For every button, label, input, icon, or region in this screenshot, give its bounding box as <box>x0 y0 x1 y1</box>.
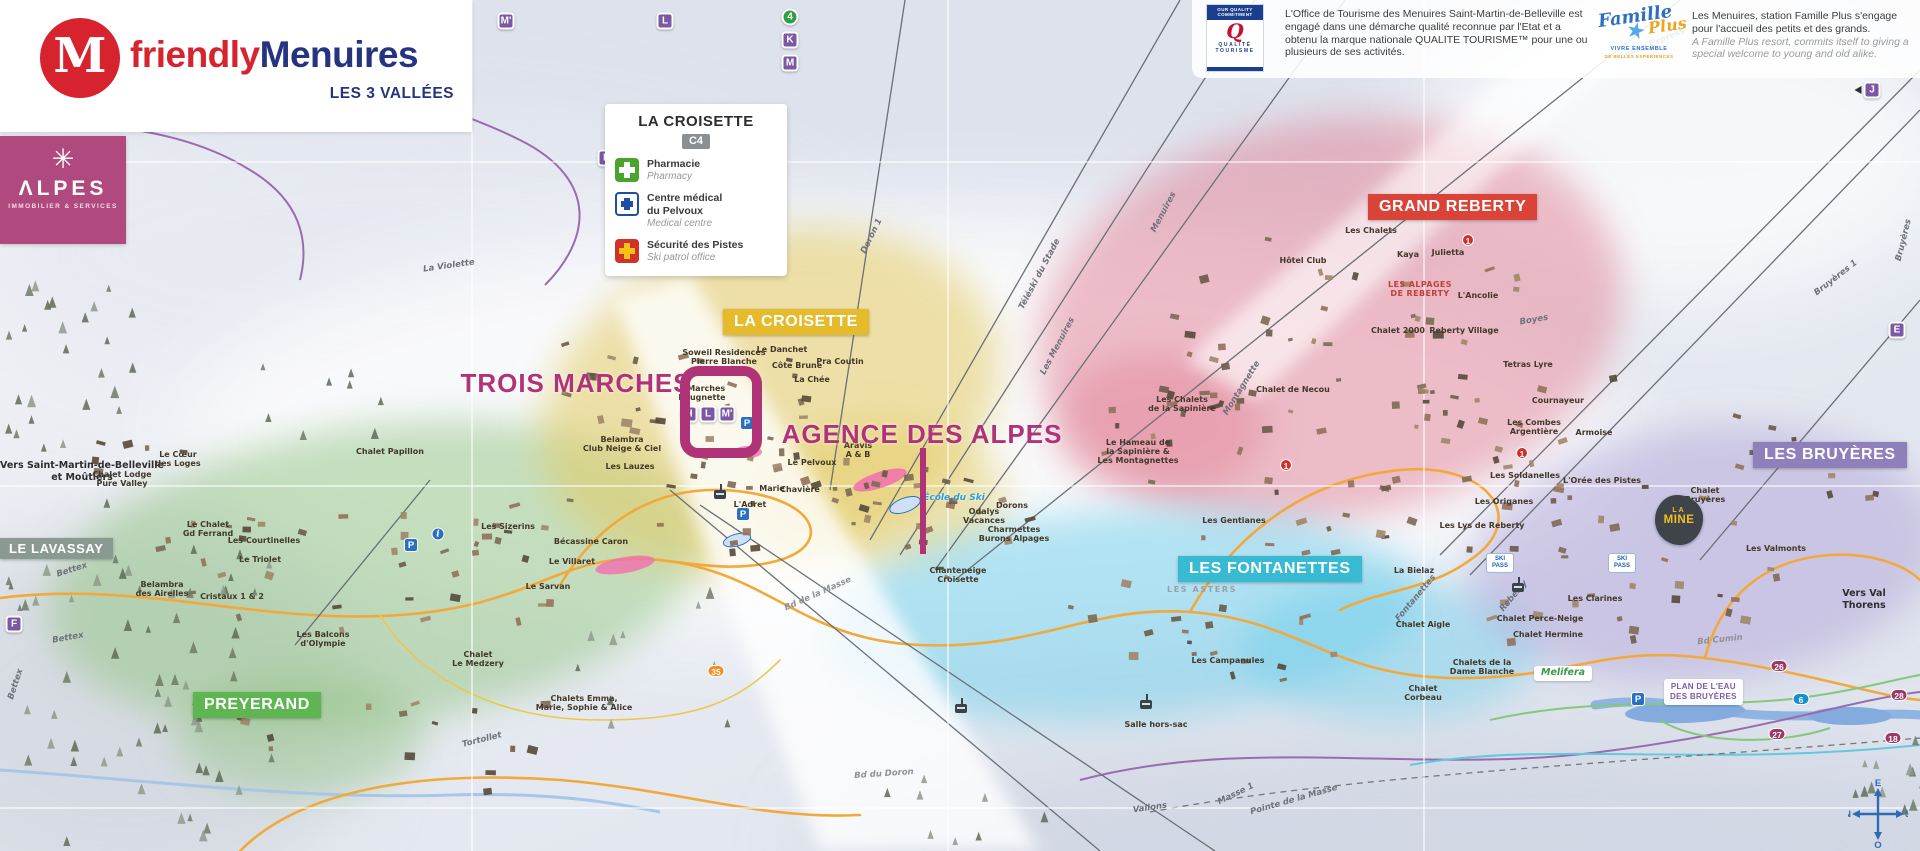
legend-item: Sécurité des PistesSki patrol office <box>615 239 777 264</box>
famille-plus-text: Les Menuires, station Famille Plus s'eng… <box>1692 10 1910 61</box>
qualite-tourisme-text: L'Office de Tourisme des Menuires Saint-… <box>1285 8 1593 59</box>
qualite-tourisme-logo: OUR QUALITY COMMITMENT Q QUALITÉ TOURISM… <box>1206 4 1264 72</box>
district-banner-les-fontanettes: LES FONTANETTES <box>1178 556 1362 582</box>
fp-text-fr: Les Menuires, station Famille Plus s'eng… <box>1692 10 1897 35</box>
parking-icon: P <box>736 507 750 521</box>
district-banner-la-croisette: LA CROISETTE <box>723 309 869 335</box>
parking-icon: P <box>404 538 418 552</box>
lift-station-badge: K <box>782 32 799 49</box>
gondola-icon <box>1140 700 1152 709</box>
brand-tagline: LES 3 VALLÉES <box>330 86 454 102</box>
route-number-badge: 18 <box>1885 732 1902 744</box>
lift-station-badge: L <box>657 13 674 30</box>
legend-title: LA CROISETTE <box>615 114 777 129</box>
brand-word-menuires: Menuires <box>260 34 418 75</box>
route-number-badge: 1 <box>1280 459 1292 471</box>
district-banner-preyerand: PREYERAND <box>193 692 321 718</box>
monogram-m: M <box>53 32 106 80</box>
plan-de-leau-label: PLAN DE L'EAU DES BRUYÈRES <box>1664 679 1743 705</box>
la-mine-logo: LA MINE <box>1655 495 1703 545</box>
agence-des-alpes-pointer-line <box>920 448 926 554</box>
ski-pass-office-badge: SKI PASS <box>1486 553 1514 573</box>
qt-banner: OUR QUALITY COMMITMENT <box>1207 5 1263 20</box>
famille-plus-logo: ★ Famille Plus VIVRE ENSEMBLE DE BELLES … <box>1596 2 1682 72</box>
legend-item: PharmaciePharmacy <box>615 158 777 183</box>
parking-icon: P <box>1631 692 1645 706</box>
fp-text-en: A Famille Plus resort, commits itself to… <box>1692 36 1909 61</box>
tourism-info-strip: OUR QUALITY COMMITMENT Q QUALITÉ TOURISM… <box>1192 0 1920 78</box>
lift-station-badge: M' <box>498 13 515 30</box>
compass-n: N <box>1848 809 1851 820</box>
qt-name-2: TOURISME <box>1207 48 1263 55</box>
brand-panel: M friendlyMenuires LES 3 VALLÉES <box>0 0 472 132</box>
district-banner-les-bruyeres: LES BRUYÈRES <box>1753 442 1907 468</box>
information-icon: i <box>432 528 445 541</box>
legend-box: LA CROISETTE C4 PharmaciePharmacyCentre … <box>605 104 787 276</box>
gondola-icon <box>714 490 726 499</box>
legend-item-text: PharmaciePharmacy <box>647 158 700 183</box>
lift-station-badge: M <box>782 55 799 72</box>
gondola-icon <box>1512 583 1524 592</box>
route-number-badge: 28 <box>1891 689 1908 701</box>
qt-q-icon: Q <box>1207 20 1263 42</box>
brand-word-friendly: friendly <box>130 34 260 75</box>
ski-pass-office-badge: SKI PASS <box>1608 553 1636 573</box>
grid-reference-badge: C4 <box>682 134 710 149</box>
route-number-badge: 35 <box>708 665 725 677</box>
route-number-badge: 1 <box>1516 447 1528 459</box>
agence-des-alpes-annotation: AGENCE DES ALPES <box>782 421 1063 447</box>
menuires-ram-logo-icon: M <box>40 18 120 98</box>
melifera-label: Melifera <box>1534 666 1592 681</box>
lift-station-badge: J <box>1864 82 1881 99</box>
legend-item-text: Sécurité des PistesSki patrol office <box>647 239 743 264</box>
snowflake-icon: ✳ <box>0 146 126 173</box>
la-mine-top: LA <box>1655 507 1703 514</box>
alpes-subtitle: IMMOBILIER & SERVICES <box>0 204 126 211</box>
gondola-icon <box>955 704 967 713</box>
pharmacy-cross-icon <box>615 158 639 182</box>
district-banner-le-lavassay: LE LAVASSAY <box>0 538 113 559</box>
qt-footer-bar <box>1207 67 1263 71</box>
lift-station-badge: F <box>6 616 23 633</box>
resort-map-canvas: LA CROISETTEGRAND REBERTYLES BRUYÈRESLES… <box>0 0 1920 851</box>
lift-station-badge: 4 <box>782 9 799 26</box>
legend-items: PharmaciePharmacyCentre médical du Pelvo… <box>615 158 777 264</box>
legend-item-text: Centre médical du PelvouxMedical centre <box>647 192 722 230</box>
ski-patrol-cross-icon <box>615 239 639 263</box>
la-mine-bottom: MINE <box>1655 514 1703 527</box>
trois-marches-annotation: TROIS MARCHES <box>460 370 691 396</box>
trois-marches-highlight-rect <box>680 366 762 458</box>
alpes-agency-logo: ✳ ΛLPES IMMOBILIER & SERVICES <box>0 136 126 244</box>
route-number-badge: 26 <box>1771 660 1788 672</box>
direction-arrow-icon <box>1855 86 1862 94</box>
fp-subtitle-1: VIVRE ENSEMBLE <box>1596 46 1682 53</box>
compass-s: S <box>1905 809 1908 820</box>
lift-station-badge: E <box>1889 322 1906 339</box>
route-number-badge: 27 <box>1769 728 1786 740</box>
alpes-name: ΛLPES <box>0 177 126 200</box>
route-number-badge: 6 <box>1793 693 1810 705</box>
route-number-badge: 1 <box>1462 234 1474 246</box>
medical-cross-icon <box>615 192 639 216</box>
brand-wordmark: friendlyMenuires <box>130 36 418 73</box>
fp-word-plus: Plus <box>1647 15 1688 36</box>
legend-item: Centre médical du PelvouxMedical centre <box>615 192 777 230</box>
compass-o: O <box>1874 840 1881 848</box>
compass-e: E <box>1875 778 1881 789</box>
compass-rose: E S O N <box>1848 778 1908 848</box>
district-banner-grand-reberty: GRAND REBERTY <box>1368 194 1537 220</box>
fp-subtitle-2: DE BELLES EXPÉRIENCES <box>1596 54 1682 59</box>
